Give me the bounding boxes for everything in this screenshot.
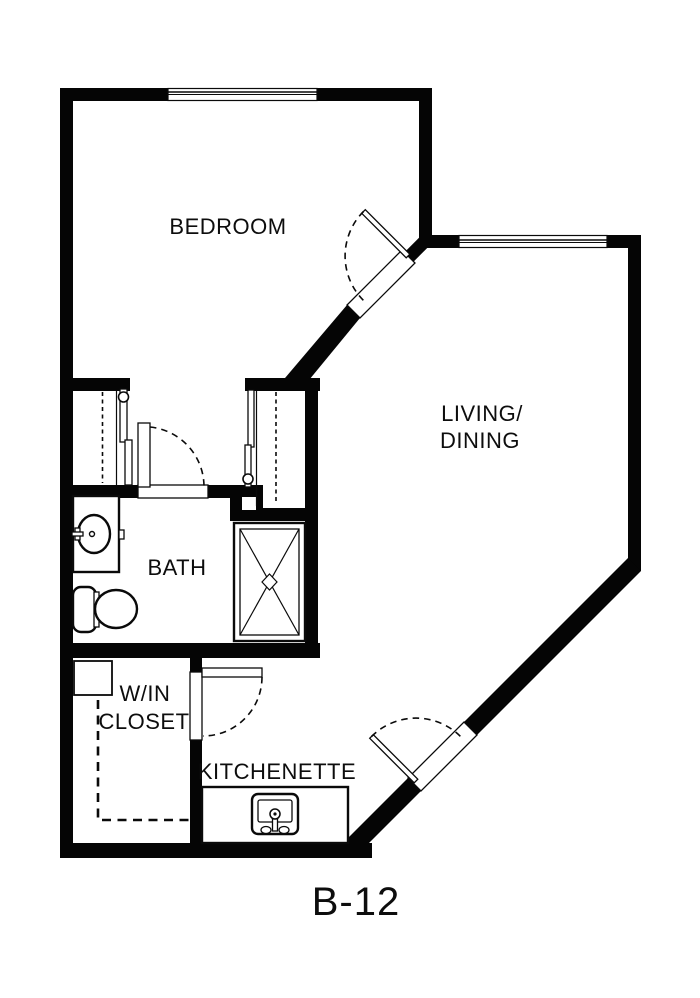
living-window-frame [459, 236, 607, 248]
wall-shower-top [257, 508, 305, 521]
toilet [73, 587, 137, 632]
walkin-closet-label-line1: W/IN [120, 681, 171, 706]
left-closet-slider-panel-2 [125, 440, 132, 485]
floor-plan-page: BEDROOM LIVING/ DINING BATH W/IN CLOSET … [0, 0, 700, 998]
shower [234, 523, 305, 641]
sink-faucet-handle-icon [72, 532, 83, 536]
wall-bath-south [60, 643, 320, 658]
unit-title: B-12 [312, 880, 401, 924]
bedroom-window [168, 89, 317, 101]
kitchen-faucet-handle-left [261, 827, 271, 834]
walkin-closet-door-threshold [190, 672, 202, 740]
vanity-side-tick [119, 530, 124, 539]
kitchen-sink-icon [252, 794, 298, 834]
closet-shelf [74, 661, 112, 695]
walkin-closet-door-leaf [202, 668, 262, 677]
toilet-tank-icon [73, 587, 96, 632]
right-closet-door-pull [243, 474, 253, 484]
kitchen-faucet-stem [273, 818, 278, 831]
bath-door-leaf [138, 423, 150, 487]
vanity-sink [72, 496, 124, 572]
wall-bedroom-right [419, 88, 432, 248]
bath-label: BATH [147, 555, 206, 580]
wall-right [628, 235, 641, 571]
wall-bottom [60, 843, 372, 858]
bedroom-label: BEDROOM [169, 214, 286, 239]
living-dining-label-line1: LIVING/ [441, 401, 523, 426]
kitchenette-label: KITCHENETTE [198, 759, 356, 784]
wall-left [60, 88, 73, 858]
left-closet-door-pull [119, 392, 129, 402]
right-closet-slider-panel-1 [248, 390, 254, 447]
kitchen-faucet-dot [273, 812, 276, 815]
toilet-bowl-icon [95, 590, 137, 628]
walkin-closet-label-line2: CLOSET [98, 709, 189, 734]
kitchenette-counter [202, 787, 348, 843]
living-window [459, 236, 607, 248]
kitchen-faucet-handle-right [279, 827, 289, 834]
wall-pier-niche [242, 497, 256, 510]
living-dining-label-line2: DINING [440, 428, 520, 453]
floor-plan: BEDROOM LIVING/ DINING BATH W/IN CLOSET … [0, 0, 700, 998]
wall-bath-living [305, 378, 318, 658]
